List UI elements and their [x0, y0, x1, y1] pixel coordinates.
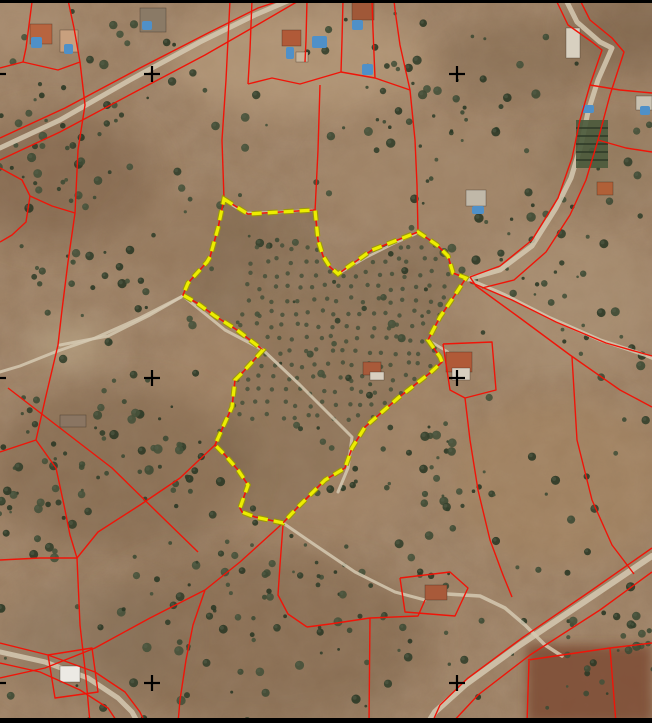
- swimming-pool: [142, 21, 152, 30]
- swimming-pool: [472, 206, 484, 214]
- swimming-pool: [286, 47, 294, 59]
- swimming-pool: [312, 36, 327, 48]
- orthophoto-map-canvas[interactable]: [0, 0, 652, 723]
- swimming-pool: [362, 64, 373, 75]
- swimming-pool: [64, 44, 73, 54]
- swimming-pool: [640, 106, 650, 115]
- swimming-pool: [31, 37, 42, 48]
- swimming-pool: [352, 20, 363, 30]
- map-viewport[interactable]: [0, 0, 652, 723]
